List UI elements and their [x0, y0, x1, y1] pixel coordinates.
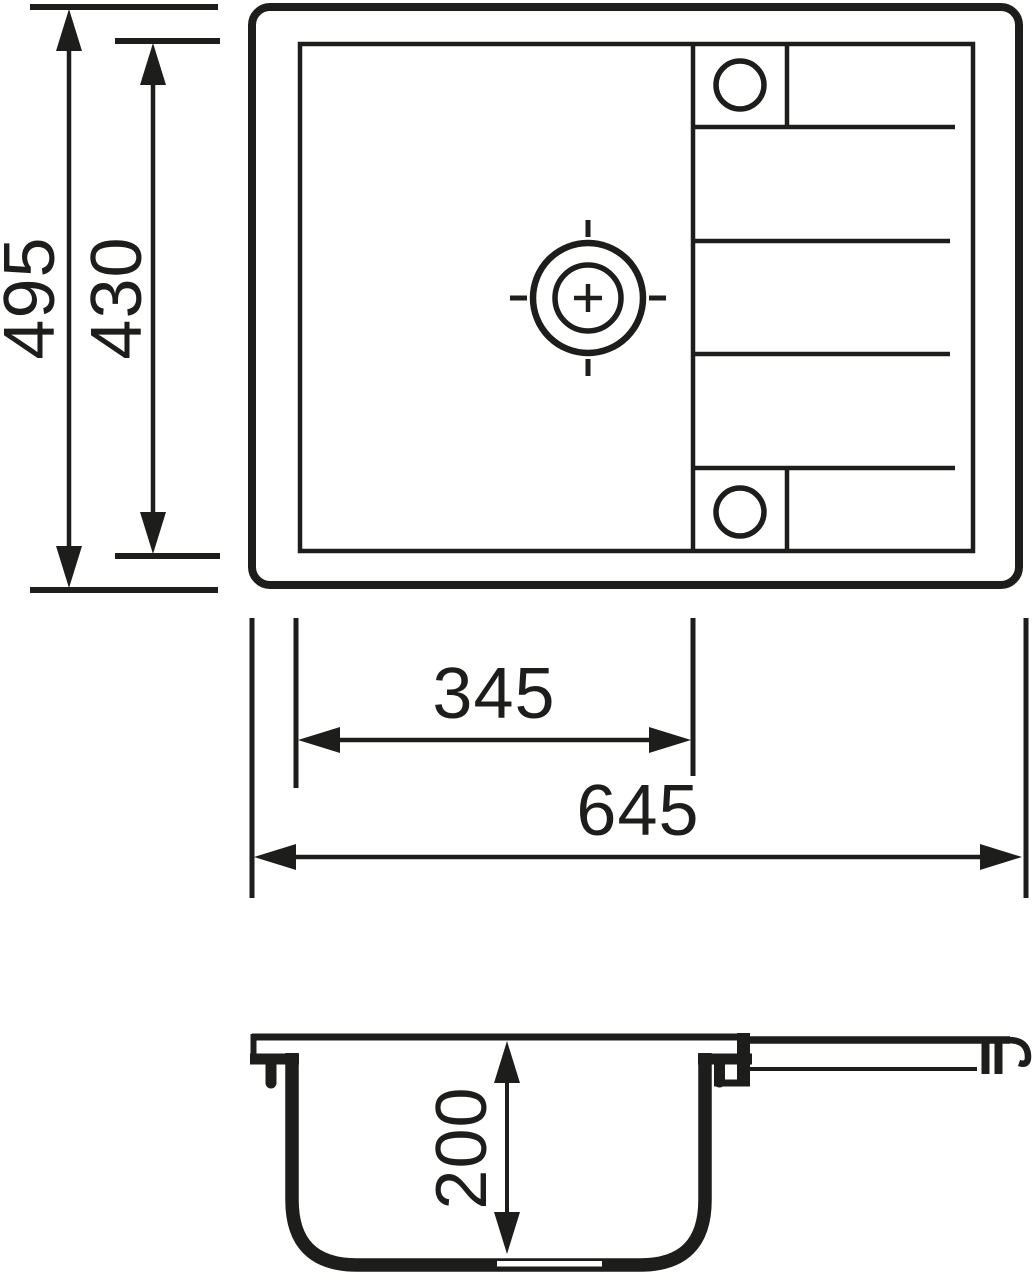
- dim-label-inner-height: 430: [77, 236, 157, 359]
- top-view: [252, 7, 1019, 585]
- arrowhead-right-icon: [980, 844, 1022, 870]
- dimension-overall-width: 645: [252, 618, 1026, 898]
- dim-label-overall-width: 645: [576, 771, 699, 851]
- dim-label-overall-height: 495: [0, 236, 70, 359]
- technical-drawing-sheet: 495 430 345 645: [0, 0, 1034, 1280]
- sink-dimension-drawing: 495 430 345 645: [0, 0, 1034, 1280]
- dim-label-bowl-depth: 200: [422, 1086, 502, 1209]
- dim-label-bowl-width: 345: [432, 654, 555, 734]
- arrowhead-left-icon: [254, 844, 296, 870]
- arrowhead-down-icon: [56, 546, 82, 588]
- arrowhead-up-icon: [56, 9, 82, 51]
- dimension-inner-height: 430: [77, 41, 220, 556]
- sink-inner-rim: [300, 44, 973, 551]
- bowl-bottom-highlight: [497, 1261, 602, 1267]
- tap-hole-top-icon: [716, 61, 764, 109]
- drainboard-profile: [750, 1040, 1028, 1074]
- dimension-bowl-depth: 200: [422, 1041, 520, 1254]
- sink-outer-edge: [252, 7, 1019, 585]
- drainboard-lines: [693, 127, 955, 468]
- arrowhead-right-icon: [649, 727, 691, 753]
- side-section-view: [250, 1033, 1028, 1267]
- arrowhead-left-icon: [298, 727, 340, 753]
- arrowhead-down-icon: [140, 512, 166, 554]
- arrowhead-down-icon: [494, 1212, 520, 1254]
- dimension-bowl-width: 345: [296, 618, 693, 788]
- tap-hole-bottom-icon: [716, 488, 764, 536]
- arrowhead-up-icon: [494, 1041, 520, 1083]
- arrowhead-up-icon: [140, 43, 166, 85]
- drain-centre-mark-icon: [510, 220, 666, 376]
